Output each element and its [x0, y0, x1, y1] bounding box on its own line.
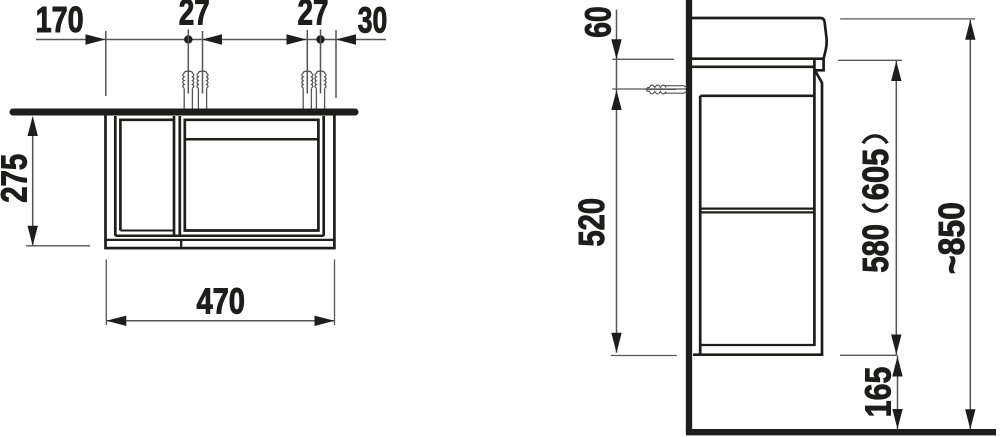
svg-text:605: 605 [855, 149, 896, 201]
svg-text:165: 165 [857, 367, 898, 418]
svg-text:27: 27 [179, 0, 210, 33]
svg-text:520: 520 [571, 198, 612, 247]
svg-text:60: 60 [577, 6, 618, 37]
svg-text:~850: ~850 [931, 202, 972, 274]
svg-text:27: 27 [298, 0, 329, 33]
svg-text:470: 470 [196, 280, 245, 321]
svg-text:170: 170 [36, 0, 84, 40]
svg-text:275: 275 [0, 154, 35, 203]
svg-text:30: 30 [358, 0, 388, 41]
svg-text:580: 580 [855, 224, 896, 273]
